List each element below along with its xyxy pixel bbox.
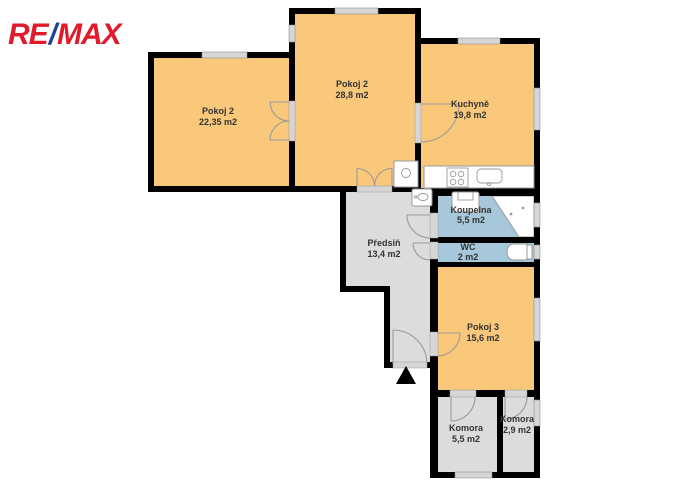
floorplan-page: RE/MAX xyxy=(0,0,684,484)
room-label-area: 15,6 m2 xyxy=(466,333,499,343)
door-frame xyxy=(505,390,527,397)
room-label-area: 5,5 m2 xyxy=(452,434,480,444)
window xyxy=(534,88,540,130)
double-door-frame xyxy=(289,101,295,141)
room-label-name: Pokoj 2 xyxy=(202,106,234,116)
window xyxy=(455,472,492,478)
door-frame xyxy=(450,390,476,397)
room-label-area: 5,5 m2 xyxy=(457,215,485,225)
room-label-area: 2,9 m2 xyxy=(503,425,531,435)
window xyxy=(458,38,500,44)
window xyxy=(534,400,540,426)
room-label-name: Pokoj 2 xyxy=(336,79,368,89)
door-frame xyxy=(430,332,438,356)
room-label-name: Kuchyně xyxy=(451,99,489,109)
room-pokoj2-mid-floor xyxy=(295,14,415,186)
boiler-icon xyxy=(412,189,432,206)
door-frame xyxy=(415,103,421,143)
shower-dot xyxy=(522,207,525,210)
room-label-area: 2 m2 xyxy=(458,252,479,262)
window xyxy=(534,298,540,341)
room-label-name: Koupelna xyxy=(450,205,492,215)
window xyxy=(534,203,540,227)
appliance-icon xyxy=(394,161,418,187)
double-door-frame xyxy=(357,186,392,192)
shower-dot xyxy=(510,213,513,216)
window xyxy=(534,245,540,259)
room-label-area: 19,8 m2 xyxy=(453,110,486,120)
window xyxy=(202,52,247,58)
room-label-area: 22,35 m2 xyxy=(199,117,237,127)
room-label-name: Komora xyxy=(449,423,484,433)
room-label-area: 28,8 m2 xyxy=(335,90,368,100)
room-label-name: WC xyxy=(461,242,476,252)
room-label-name: Pokoj 3 xyxy=(467,322,499,332)
toilet-tank xyxy=(527,245,532,259)
window xyxy=(289,25,295,42)
entrance-arrow-icon xyxy=(396,366,416,384)
room-label-name: Předsiň xyxy=(367,238,400,248)
floor-plan: Pokoj 2 22,35 m2 Pokoj 2 28,8 m2 Kuchyně… xyxy=(0,0,684,484)
room-label-area: 13,4 m2 xyxy=(367,249,400,259)
window xyxy=(335,8,378,14)
door-frame xyxy=(430,213,438,238)
entrance-door-frame xyxy=(393,362,427,368)
room-label-name: Komora xyxy=(500,414,535,424)
door-frame xyxy=(430,242,438,259)
